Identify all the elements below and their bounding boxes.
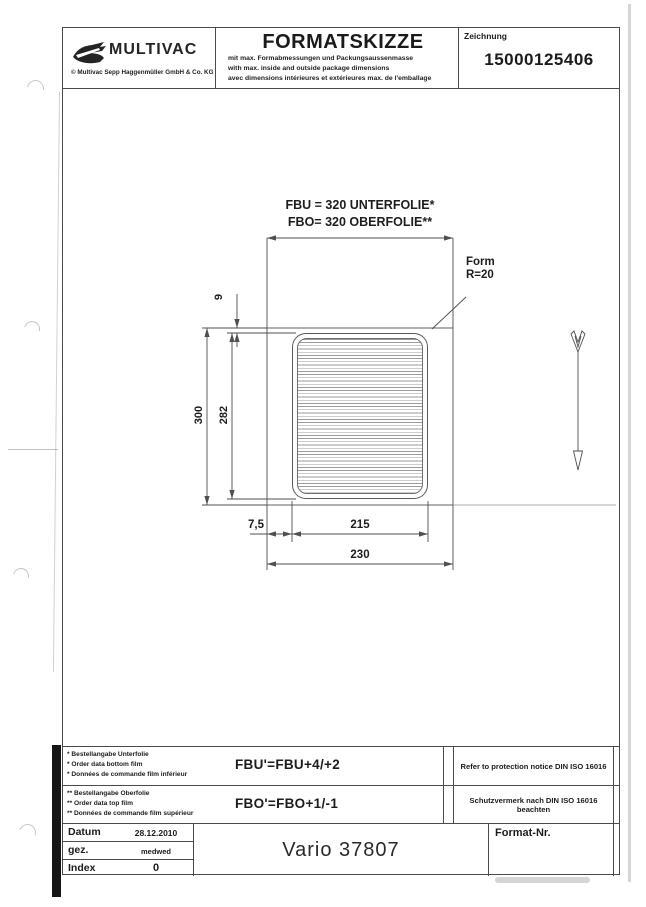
table-row: gez. medwed xyxy=(63,842,193,860)
note-line-fr: * Données de commande film inférieur xyxy=(67,770,187,780)
subtitle-english: with max. inside and outside package dim… xyxy=(228,64,458,74)
scan-black-bar xyxy=(52,745,61,897)
protection-notice-de: Schutzvermerk nach DIN ISO 16016 beachte… xyxy=(454,796,613,814)
punch-hole xyxy=(16,821,39,844)
note-line-fr: ** Données de commande film supérieur xyxy=(67,809,193,819)
protection-notice-en-cell: Refer to protection notice DIN ISO 16016 xyxy=(453,747,614,785)
dim-label-top-film-width: FBO= 320 OBERFOLIE** xyxy=(245,215,475,229)
title-cell: FORMATSKIZZE mit max. Formabmessungen un… xyxy=(216,28,459,88)
document-title: FORMATSKIZZE xyxy=(228,31,458,54)
dim-label-7-5: 7,5 xyxy=(236,519,276,531)
fold-mark xyxy=(8,449,58,450)
note-row-top-film: ** Bestellangabe Oberfolie ** Order data… xyxy=(63,785,619,823)
punch-hole xyxy=(21,318,43,340)
protection-notice-en: Refer to protection notice DIN ISO 16016 xyxy=(460,762,606,771)
logo-copyright: © Multivac Sepp Haggenmüller GmbH & Co. … xyxy=(71,69,214,76)
note-row-bottom-film: * Bestellangabe Unterfolie * Order data … xyxy=(63,746,619,785)
dim-label-9: 9 xyxy=(213,284,225,310)
scan-smudge xyxy=(495,877,590,883)
form-radius-note-line1: Form xyxy=(466,256,495,268)
subtitle-german: mit max. Formabmessungen und Packungsaus… xyxy=(228,54,458,64)
format-number-cell: Format-Nr. xyxy=(488,824,614,876)
dim-label-bottom-film-width: FBU = 320 UNTERFOLIE* xyxy=(245,198,475,212)
divider xyxy=(443,786,444,823)
row-value: medwed xyxy=(119,842,193,859)
dim-label-230: 230 xyxy=(328,549,392,561)
scanned-formatskizze-page: MULTIVAC © Multivac Sepp Haggenmüller Gm… xyxy=(0,0,646,907)
logo-wordmark: MULTIVAC xyxy=(109,41,197,59)
dim-label-282: 282 xyxy=(218,400,230,430)
machine-name: Vario 37807 xyxy=(282,839,399,862)
dim-label-300: 300 xyxy=(193,400,205,430)
drawing-number-label: Zeichnung xyxy=(459,28,619,41)
formula-bottom-film: FBU'=FBU+4/+2 xyxy=(235,757,340,772)
machine-cell: Vario 37807 xyxy=(194,824,488,876)
note-line-de: ** Bestellangabe Oberfolie xyxy=(67,789,193,799)
form-radius-note-line2: R=20 xyxy=(466,269,494,281)
logo-cell: MULTIVAC © Multivac Sepp Haggenmüller Gm… xyxy=(63,28,216,88)
trilingual-note-top-film: ** Bestellangabe Oberfolie ** Order data… xyxy=(67,789,193,820)
punch-hole xyxy=(24,77,48,101)
dim-label-215: 215 xyxy=(328,519,392,531)
sheet-header: MULTIVAC © Multivac Sepp Haggenmüller Gm… xyxy=(63,28,619,89)
title-block: Datum 28.12.2010 gez. medwed Index 0 Var… xyxy=(63,823,619,876)
package-hatched-area xyxy=(297,338,423,494)
protection-notice-de-cell: Schutzvermerk nach DIN ISO 16016 beachte… xyxy=(453,786,614,823)
row-value: 0 xyxy=(119,860,193,876)
formula-top-film: FBO'=FBO+1/-1 xyxy=(235,796,338,811)
drawing-number-value: 15000125406 xyxy=(459,50,619,70)
scan-edge-line xyxy=(53,92,60,672)
row-label: Datum xyxy=(63,824,119,841)
note-line-en: ** Order data top film xyxy=(67,799,193,809)
multivac-machine-icon xyxy=(71,38,107,65)
scan-edge-shadow xyxy=(628,4,631,882)
drawing-number-cell: Zeichnung 15000125406 xyxy=(459,28,619,88)
trilingual-note-bottom-film: * Bestellangabe Unterfolie * Order data … xyxy=(67,750,187,781)
punch-hole xyxy=(10,565,32,587)
table-row: Index 0 xyxy=(63,860,193,876)
note-line-en: * Order data bottom film xyxy=(67,760,187,770)
note-line-de: * Bestellangabe Unterfolie xyxy=(67,750,187,760)
subtitle-french: avec dimensions intérieures et extérieur… xyxy=(228,74,458,84)
table-row: Datum 28.12.2010 xyxy=(63,824,193,842)
divider xyxy=(443,747,444,785)
row-label: Index xyxy=(63,860,119,876)
row-label: gez. xyxy=(63,842,119,859)
title-block-table: Datum 28.12.2010 gez. medwed Index 0 xyxy=(63,824,194,876)
row-value: 28.12.2010 xyxy=(119,824,193,841)
